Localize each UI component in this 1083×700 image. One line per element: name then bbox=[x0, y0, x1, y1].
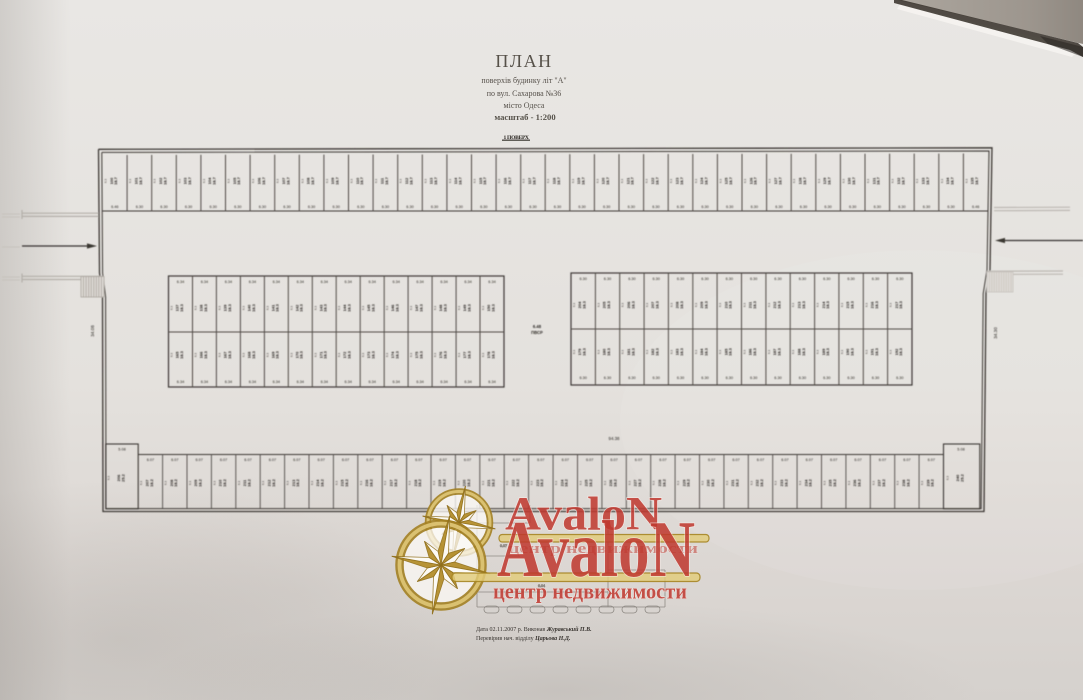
svg-text:18.7: 18.7 bbox=[581, 176, 586, 185]
svg-text:18.2: 18.2 bbox=[686, 478, 691, 487]
svg-text:6.3: 6.3 bbox=[645, 350, 649, 355]
svg-text:6.30: 6.30 bbox=[234, 205, 241, 209]
svg-text:6.30: 6.30 bbox=[849, 205, 856, 209]
svg-text:6.3: 6.3 bbox=[289, 353, 293, 358]
svg-text:6.3: 6.3 bbox=[792, 179, 796, 184]
svg-text:6.30: 6.30 bbox=[283, 205, 290, 209]
svg-text:18.3: 18.3 bbox=[227, 303, 232, 312]
svg-text:6.3: 6.3 bbox=[433, 353, 437, 358]
svg-text:18.3: 18.3 bbox=[227, 350, 232, 359]
svg-text:6.30: 6.30 bbox=[775, 205, 782, 209]
svg-text:6.3: 6.3 bbox=[847, 481, 851, 486]
svg-text:6.3: 6.3 bbox=[896, 481, 900, 486]
svg-text:6.3: 6.3 bbox=[107, 476, 111, 481]
svg-text:18.2: 18.2 bbox=[271, 478, 276, 487]
svg-text:6.3: 6.3 bbox=[823, 481, 827, 486]
svg-text:6.07: 6.07 bbox=[928, 458, 935, 462]
svg-text:18.2: 18.2 bbox=[857, 478, 862, 487]
svg-text:6.3: 6.3 bbox=[241, 306, 245, 311]
svg-text:6.3: 6.3 bbox=[265, 306, 269, 311]
svg-text:6.3: 6.3 bbox=[791, 303, 795, 308]
svg-text:ПЛАН: ПЛАН bbox=[495, 51, 552, 71]
svg-text:6.3: 6.3 bbox=[359, 481, 363, 486]
svg-text:18.2: 18.2 bbox=[393, 478, 398, 487]
svg-text:6.07: 6.07 bbox=[854, 458, 861, 462]
svg-text:18.3: 18.3 bbox=[850, 300, 855, 309]
svg-text:6.3: 6.3 bbox=[170, 353, 174, 358]
svg-text:6.3: 6.3 bbox=[572, 303, 576, 308]
svg-text:6.30: 6.30 bbox=[259, 205, 266, 209]
svg-text:5.08: 5.08 bbox=[118, 448, 125, 452]
svg-text:6.3: 6.3 bbox=[627, 481, 631, 486]
svg-text:6.30: 6.30 bbox=[652, 205, 659, 209]
svg-text:18.7: 18.7 bbox=[384, 176, 389, 185]
svg-text:6.07: 6.07 bbox=[415, 458, 422, 462]
svg-text:6.30: 6.30 bbox=[872, 376, 879, 380]
svg-text:6.3: 6.3 bbox=[261, 481, 265, 486]
svg-text:18.3: 18.3 bbox=[179, 303, 184, 312]
svg-text:18.2: 18.2 bbox=[368, 478, 373, 487]
svg-text:18.2: 18.2 bbox=[832, 478, 837, 487]
svg-text:34.30: 34.30 bbox=[993, 327, 998, 339]
svg-text:6.3: 6.3 bbox=[265, 353, 269, 358]
svg-text:6.30: 6.30 bbox=[333, 205, 340, 209]
svg-text:18.7: 18.7 bbox=[335, 176, 340, 185]
svg-text:18.3: 18.3 bbox=[898, 300, 903, 309]
svg-text:6.3: 6.3 bbox=[701, 481, 705, 486]
svg-text:6.3: 6.3 bbox=[432, 481, 436, 486]
svg-text:6.30: 6.30 bbox=[554, 205, 561, 209]
svg-text:6.3: 6.3 bbox=[694, 303, 698, 308]
svg-text:6.3: 6.3 bbox=[694, 350, 698, 355]
svg-text:6.34: 6.34 bbox=[177, 280, 184, 284]
svg-text:6.34: 6.34 bbox=[201, 380, 208, 384]
svg-text:6.3: 6.3 bbox=[481, 306, 485, 311]
svg-text:18.7: 18.7 bbox=[827, 176, 832, 185]
svg-text:6.30: 6.30 bbox=[628, 277, 635, 281]
svg-text:6.3: 6.3 bbox=[313, 353, 317, 358]
svg-text:6.3: 6.3 bbox=[153, 179, 157, 184]
svg-text:6.3: 6.3 bbox=[798, 481, 802, 486]
svg-text:6.3: 6.3 bbox=[276, 179, 280, 184]
svg-text:6.07: 6.07 bbox=[342, 458, 349, 462]
svg-text:Дата 02.11.2007 р. Виконав: Дата 02.11.2007 р. Виконав Журавський П.… bbox=[476, 626, 592, 633]
svg-text:6.3: 6.3 bbox=[350, 179, 354, 184]
svg-text:6.34: 6.34 bbox=[321, 280, 328, 284]
svg-text:18.7: 18.7 bbox=[310, 176, 315, 185]
svg-text:6.34: 6.34 bbox=[488, 280, 495, 284]
svg-text:6.3: 6.3 bbox=[767, 350, 771, 355]
svg-text:6.30: 6.30 bbox=[800, 205, 807, 209]
svg-text:6.3: 6.3 bbox=[457, 353, 461, 358]
svg-text:18.7: 18.7 bbox=[654, 176, 659, 185]
svg-text:18.2: 18.2 bbox=[930, 478, 935, 487]
svg-text:6.3: 6.3 bbox=[645, 179, 649, 184]
svg-text:18.7: 18.7 bbox=[630, 176, 635, 185]
svg-text:6.30: 6.30 bbox=[847, 376, 854, 380]
svg-text:6.48: 6.48 bbox=[533, 324, 542, 329]
svg-text:18.2: 18.2 bbox=[710, 478, 715, 487]
svg-text:6.3: 6.3 bbox=[237, 481, 241, 486]
svg-text:6.3: 6.3 bbox=[596, 303, 600, 308]
svg-text:18.3: 18.3 bbox=[203, 303, 208, 312]
svg-text:18.3: 18.3 bbox=[251, 350, 256, 359]
svg-text:18.2: 18.2 bbox=[466, 478, 471, 487]
svg-text:6.30: 6.30 bbox=[677, 205, 684, 209]
svg-text:6.3: 6.3 bbox=[725, 481, 729, 486]
svg-text:6.30: 6.30 bbox=[824, 205, 831, 209]
svg-text:6.3: 6.3 bbox=[408, 481, 412, 486]
svg-text:18.3: 18.3 bbox=[655, 300, 660, 309]
svg-text:18.7: 18.7 bbox=[138, 176, 143, 185]
svg-text:18.3: 18.3 bbox=[395, 303, 400, 312]
svg-text:18.2: 18.2 bbox=[198, 478, 203, 487]
svg-text:6.3: 6.3 bbox=[840, 350, 844, 355]
svg-text:18.7: 18.7 bbox=[531, 176, 536, 185]
svg-text:Перевірив нач. відділу Ца: Перевірив нач. відділу Царьова Н.Д. bbox=[476, 636, 571, 642]
svg-text:6.3: 6.3 bbox=[620, 179, 624, 184]
svg-text:6.30: 6.30 bbox=[750, 277, 757, 281]
svg-text:6.3: 6.3 bbox=[718, 350, 722, 355]
svg-text:6.34: 6.34 bbox=[464, 280, 471, 284]
svg-text:6.3: 6.3 bbox=[946, 476, 950, 481]
svg-text:18.3: 18.3 bbox=[825, 300, 830, 309]
svg-text:18.3: 18.3 bbox=[323, 303, 328, 312]
svg-text:18.3: 18.3 bbox=[655, 347, 660, 356]
svg-text:6.3: 6.3 bbox=[595, 179, 599, 184]
svg-text:6.34: 6.34 bbox=[201, 280, 208, 284]
svg-text:18.3: 18.3 bbox=[443, 303, 448, 312]
svg-text:місто Одеса: місто Одеса bbox=[504, 101, 545, 110]
svg-text:6.3: 6.3 bbox=[579, 481, 583, 486]
svg-text:6.3: 6.3 bbox=[300, 179, 304, 184]
svg-text:18.3: 18.3 bbox=[467, 350, 472, 359]
svg-text:6.30: 6.30 bbox=[580, 376, 587, 380]
svg-text:6.3: 6.3 bbox=[774, 481, 778, 486]
svg-text:6.3: 6.3 bbox=[871, 481, 875, 486]
svg-text:6.3: 6.3 bbox=[337, 306, 341, 311]
svg-text:6.3: 6.3 bbox=[104, 179, 108, 184]
svg-text:25.2: 25.2 bbox=[959, 473, 964, 482]
svg-text:6.34: 6.34 bbox=[177, 380, 184, 384]
svg-text:6.07: 6.07 bbox=[903, 458, 910, 462]
svg-text:6.30: 6.30 bbox=[480, 205, 487, 209]
svg-text:6.3: 6.3 bbox=[217, 306, 221, 311]
svg-text:поверхів будинку літ "А": поверхів будинку літ "А" bbox=[481, 76, 566, 85]
svg-text:6.34: 6.34 bbox=[249, 380, 256, 384]
svg-text:6.3: 6.3 bbox=[433, 306, 437, 311]
svg-text:5.08: 5.08 bbox=[957, 448, 964, 452]
svg-text:18.7: 18.7 bbox=[285, 176, 290, 185]
svg-text:18.3: 18.3 bbox=[395, 350, 400, 359]
svg-text:6.3: 6.3 bbox=[481, 481, 485, 486]
svg-text:18.3: 18.3 bbox=[752, 300, 757, 309]
svg-text:18.2: 18.2 bbox=[564, 478, 569, 487]
svg-text:6.30: 6.30 bbox=[578, 205, 585, 209]
svg-text:18.2: 18.2 bbox=[246, 478, 251, 487]
svg-text:6.30: 6.30 bbox=[898, 205, 905, 209]
svg-text:по вул. Сахарова №36: по вул. Сахарова №36 bbox=[487, 89, 562, 98]
svg-text:6.3: 6.3 bbox=[621, 350, 625, 355]
svg-text:6.3: 6.3 bbox=[718, 179, 722, 184]
svg-text:6.07: 6.07 bbox=[708, 458, 715, 462]
svg-text:6.3: 6.3 bbox=[337, 353, 341, 358]
svg-text:6.3: 6.3 bbox=[964, 179, 968, 184]
svg-text:18.7: 18.7 bbox=[950, 176, 955, 185]
svg-text:6.3: 6.3 bbox=[652, 481, 656, 486]
svg-text:6.34: 6.34 bbox=[249, 280, 256, 284]
svg-text:6.30: 6.30 bbox=[726, 277, 733, 281]
svg-text:18.3: 18.3 bbox=[898, 347, 903, 356]
svg-text:6.07: 6.07 bbox=[635, 458, 642, 462]
svg-text:6.30: 6.30 bbox=[799, 376, 806, 380]
svg-text:18.3: 18.3 bbox=[179, 350, 184, 359]
svg-text:6.34: 6.34 bbox=[440, 380, 447, 384]
svg-text:18.2: 18.2 bbox=[539, 478, 544, 487]
svg-text:18.3: 18.3 bbox=[443, 350, 448, 359]
svg-text:6.3: 6.3 bbox=[669, 303, 673, 308]
svg-text:18.3: 18.3 bbox=[275, 350, 280, 359]
svg-text:6.07: 6.07 bbox=[440, 458, 447, 462]
svg-text:18.7: 18.7 bbox=[802, 176, 807, 185]
svg-text:18.7: 18.7 bbox=[359, 176, 364, 185]
svg-text:6.3: 6.3 bbox=[170, 306, 174, 311]
svg-text:6.3: 6.3 bbox=[864, 303, 868, 308]
svg-text:18.7: 18.7 bbox=[433, 176, 438, 185]
svg-text:18.7: 18.7 bbox=[605, 176, 610, 185]
svg-text:6.34: 6.34 bbox=[416, 380, 423, 384]
svg-text:18.2: 18.2 bbox=[515, 478, 520, 487]
svg-text:6.07: 6.07 bbox=[781, 458, 788, 462]
svg-text:18.3: 18.3 bbox=[299, 350, 304, 359]
svg-text:центр недвижимости: центр недвижимости bbox=[493, 579, 687, 604]
svg-text:6.34: 6.34 bbox=[321, 380, 328, 384]
svg-text:18.3: 18.3 bbox=[679, 300, 684, 309]
svg-text:18.3: 18.3 bbox=[582, 347, 587, 356]
svg-text:6.30: 6.30 bbox=[872, 277, 879, 281]
svg-text:18.3: 18.3 bbox=[371, 350, 376, 359]
svg-text:6.3: 6.3 bbox=[676, 481, 680, 486]
svg-text:6.30: 6.30 bbox=[580, 277, 587, 281]
svg-text:18.2: 18.2 bbox=[442, 478, 447, 487]
svg-text:6.07: 6.07 bbox=[830, 458, 837, 462]
svg-text:18.7: 18.7 bbox=[261, 176, 266, 185]
svg-text:18.3: 18.3 bbox=[606, 347, 611, 356]
svg-text:18.7: 18.7 bbox=[974, 176, 979, 185]
svg-text:6.3: 6.3 bbox=[743, 303, 747, 308]
svg-text:6.3: 6.3 bbox=[889, 350, 893, 355]
svg-text:6.3: 6.3 bbox=[596, 350, 600, 355]
svg-text:6.07: 6.07 bbox=[220, 458, 227, 462]
svg-text:6.30: 6.30 bbox=[774, 277, 781, 281]
svg-text:18.3: 18.3 bbox=[874, 347, 879, 356]
svg-text:6.07: 6.07 bbox=[488, 458, 495, 462]
svg-text:6.3: 6.3 bbox=[571, 179, 575, 184]
svg-text:6.3: 6.3 bbox=[212, 481, 216, 486]
svg-text:6.07: 6.07 bbox=[269, 458, 276, 462]
svg-text:6.3: 6.3 bbox=[645, 303, 649, 308]
svg-text:6.30: 6.30 bbox=[653, 277, 660, 281]
svg-text:18.7: 18.7 bbox=[507, 176, 512, 185]
svg-text:6.3: 6.3 bbox=[361, 353, 365, 358]
svg-text:6.30: 6.30 bbox=[750, 376, 757, 380]
svg-text:6.07: 6.07 bbox=[732, 458, 739, 462]
svg-text:6.07: 6.07 bbox=[757, 458, 764, 462]
svg-text:6.3: 6.3 bbox=[334, 481, 338, 486]
svg-text:6.34: 6.34 bbox=[440, 280, 447, 284]
svg-text:6.3: 6.3 bbox=[217, 353, 221, 358]
svg-text:6.30: 6.30 bbox=[628, 205, 635, 209]
svg-text:6.34: 6.34 bbox=[369, 280, 376, 284]
svg-text:6.34: 6.34 bbox=[273, 380, 280, 384]
svg-text:6.3: 6.3 bbox=[313, 306, 317, 311]
svg-text:6.07: 6.07 bbox=[586, 458, 593, 462]
svg-text:18.3: 18.3 bbox=[630, 347, 635, 356]
svg-text:6.3: 6.3 bbox=[188, 481, 192, 486]
svg-text:6.34: 6.34 bbox=[297, 280, 304, 284]
svg-text:6.07: 6.07 bbox=[659, 458, 666, 462]
svg-text:6.30: 6.30 bbox=[357, 205, 364, 209]
svg-text:18.2: 18.2 bbox=[613, 478, 618, 487]
svg-text:18.2: 18.2 bbox=[588, 478, 593, 487]
svg-text:18.2: 18.2 bbox=[320, 478, 325, 487]
svg-text:18.7: 18.7 bbox=[187, 176, 192, 185]
svg-text:6.07: 6.07 bbox=[391, 458, 398, 462]
svg-text:18.3: 18.3 bbox=[251, 303, 256, 312]
svg-text:6.30: 6.30 bbox=[456, 205, 463, 209]
svg-text:6.07: 6.07 bbox=[464, 458, 471, 462]
svg-text:6.34: 6.34 bbox=[225, 280, 232, 284]
svg-text:18.7: 18.7 bbox=[851, 176, 856, 185]
svg-text:6.30: 6.30 bbox=[799, 277, 806, 281]
svg-text:6.3: 6.3 bbox=[546, 179, 550, 184]
svg-text:6.3: 6.3 bbox=[325, 179, 329, 184]
svg-text:6.3: 6.3 bbox=[864, 350, 868, 355]
svg-text:18.3: 18.3 bbox=[776, 347, 781, 356]
svg-text:6.3: 6.3 bbox=[497, 179, 501, 184]
svg-text:18.2: 18.2 bbox=[661, 478, 666, 487]
svg-text:6.34: 6.34 bbox=[345, 280, 352, 284]
svg-text:18.7: 18.7 bbox=[408, 176, 413, 185]
svg-text:18.2: 18.2 bbox=[295, 478, 300, 487]
svg-text:6.3: 6.3 bbox=[889, 303, 893, 308]
svg-text:18.3: 18.3 bbox=[299, 303, 304, 312]
svg-text:18.7: 18.7 bbox=[113, 176, 118, 185]
svg-text:6.30: 6.30 bbox=[529, 205, 536, 209]
svg-text:6.3: 6.3 bbox=[409, 353, 413, 358]
svg-text:6.46: 6.46 bbox=[111, 205, 118, 209]
svg-text:6.3: 6.3 bbox=[139, 481, 143, 486]
svg-text:6.30: 6.30 bbox=[751, 205, 758, 209]
svg-text:6.30: 6.30 bbox=[308, 205, 315, 209]
svg-text:6.3: 6.3 bbox=[374, 179, 378, 184]
svg-text:18.7: 18.7 bbox=[876, 176, 881, 185]
svg-text:6.3: 6.3 bbox=[128, 179, 132, 184]
svg-text:18.2: 18.2 bbox=[222, 478, 227, 487]
svg-text:6.3: 6.3 bbox=[522, 179, 526, 184]
svg-text:6.3: 6.3 bbox=[251, 179, 255, 184]
svg-text:18.7: 18.7 bbox=[777, 176, 782, 185]
svg-text:18.2: 18.2 bbox=[759, 478, 764, 487]
svg-text:6.3: 6.3 bbox=[385, 306, 389, 311]
svg-text:18.7: 18.7 bbox=[458, 176, 463, 185]
svg-text:18.2: 18.2 bbox=[417, 478, 422, 487]
svg-text:6.3: 6.3 bbox=[554, 481, 558, 486]
svg-text:6.3: 6.3 bbox=[743, 350, 747, 355]
svg-text:6.3: 6.3 bbox=[915, 179, 919, 184]
svg-text:6.3: 6.3 bbox=[669, 179, 673, 184]
svg-text:6.07: 6.07 bbox=[293, 458, 300, 462]
svg-text:6.30: 6.30 bbox=[505, 205, 512, 209]
svg-text:25.2: 25.2 bbox=[120, 473, 125, 482]
svg-text:18.3: 18.3 bbox=[275, 303, 280, 312]
svg-text:18.3: 18.3 bbox=[728, 347, 733, 356]
svg-text:18.3: 18.3 bbox=[850, 347, 855, 356]
svg-text:ПВСР: ПВСР bbox=[531, 330, 543, 335]
svg-text:18.3: 18.3 bbox=[347, 350, 352, 359]
svg-text:6.3: 6.3 bbox=[194, 353, 198, 358]
svg-text:18.2: 18.2 bbox=[173, 478, 178, 487]
svg-text:6.3: 6.3 bbox=[816, 350, 820, 355]
svg-text:6.3: 6.3 bbox=[202, 179, 206, 184]
svg-text:6.3: 6.3 bbox=[456, 481, 460, 486]
svg-text:18.3: 18.3 bbox=[703, 300, 708, 309]
svg-text:6.30: 6.30 bbox=[823, 277, 830, 281]
svg-text:6.07: 6.07 bbox=[562, 458, 569, 462]
svg-text:6.3: 6.3 bbox=[817, 179, 821, 184]
svg-text:18.2: 18.2 bbox=[344, 478, 349, 487]
svg-text:6.3: 6.3 bbox=[227, 179, 231, 184]
svg-text:18.7: 18.7 bbox=[679, 176, 684, 185]
svg-text:18.3: 18.3 bbox=[323, 350, 328, 359]
svg-text:6.30: 6.30 bbox=[653, 376, 660, 380]
svg-text:6.30: 6.30 bbox=[677, 376, 684, 380]
svg-text:6.34: 6.34 bbox=[345, 380, 352, 384]
svg-text:18.2: 18.2 bbox=[735, 478, 740, 487]
svg-text:6.30: 6.30 bbox=[874, 205, 881, 209]
svg-text:18.2: 18.2 bbox=[783, 478, 788, 487]
svg-text:6.3: 6.3 bbox=[289, 306, 293, 311]
svg-text:18.3: 18.3 bbox=[419, 350, 424, 359]
svg-text:18.3: 18.3 bbox=[801, 300, 806, 309]
svg-text:18.3: 18.3 bbox=[347, 303, 352, 312]
svg-text:6.07: 6.07 bbox=[171, 458, 178, 462]
svg-text:18.3: 18.3 bbox=[801, 347, 806, 356]
svg-text:18.7: 18.7 bbox=[728, 176, 733, 185]
svg-text:6.34: 6.34 bbox=[464, 380, 471, 384]
svg-text:6.3: 6.3 bbox=[383, 481, 387, 486]
svg-text:6.3: 6.3 bbox=[768, 179, 772, 184]
svg-text:6.3: 6.3 bbox=[473, 179, 477, 184]
svg-text:6.07: 6.07 bbox=[806, 458, 813, 462]
svg-text:6.30: 6.30 bbox=[701, 205, 708, 209]
svg-text:18.3: 18.3 bbox=[467, 303, 472, 312]
svg-text:6.30: 6.30 bbox=[185, 205, 192, 209]
svg-text:6.3: 6.3 bbox=[621, 303, 625, 308]
svg-text:18.3: 18.3 bbox=[582, 300, 587, 309]
svg-text:6.30: 6.30 bbox=[923, 205, 930, 209]
svg-text:6.3: 6.3 bbox=[399, 179, 403, 184]
svg-text:18.2: 18.2 bbox=[490, 478, 495, 487]
svg-text:6.30: 6.30 bbox=[628, 376, 635, 380]
svg-text:6.30: 6.30 bbox=[406, 205, 413, 209]
svg-text:6.3: 6.3 bbox=[310, 481, 314, 486]
svg-text:6.07: 6.07 bbox=[366, 458, 373, 462]
svg-text:6.30: 6.30 bbox=[604, 277, 611, 281]
svg-text:6.3: 6.3 bbox=[841, 179, 845, 184]
svg-text:18.3: 18.3 bbox=[825, 347, 830, 356]
svg-text:6.30: 6.30 bbox=[603, 205, 610, 209]
